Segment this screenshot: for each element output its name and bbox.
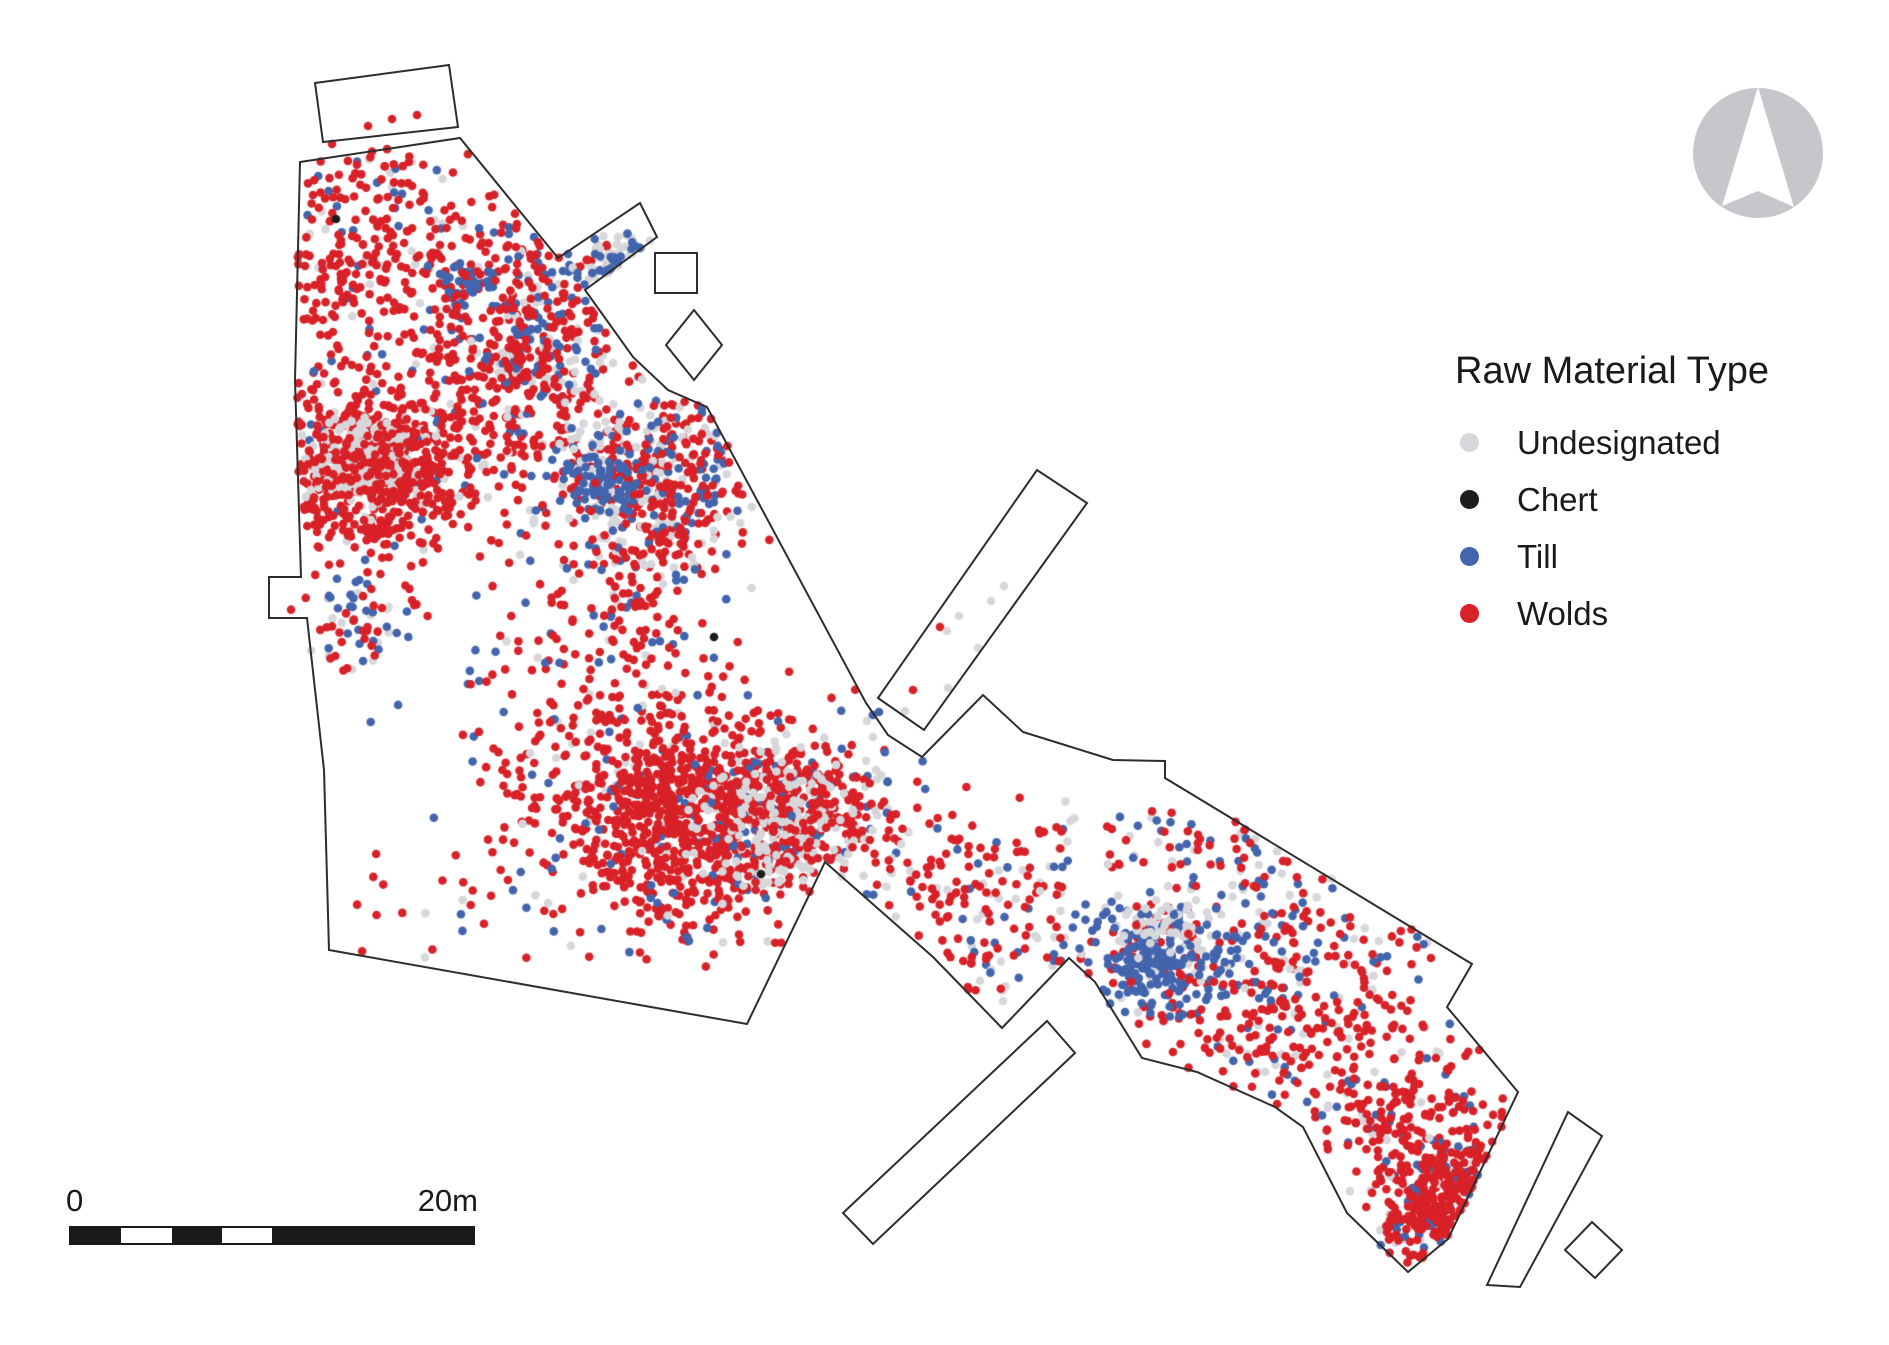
long-rectangle-ne [878,470,1087,730]
legend-item-label: Chert [1517,481,1598,519]
scale-bar-segment-0 [71,1228,121,1243]
legend-items: UndesignatedChertTillWolds [1455,414,1815,642]
legend-item-wolds: Wolds [1455,585,1815,642]
legend-item-chert: Chert [1455,471,1815,528]
tilted-square-ne [666,310,722,380]
legend-swatch-till [1460,547,1479,566]
legend-title: Raw Material Type [1455,350,1815,392]
main-excavation-outline [269,138,1518,1272]
figure-distribution-map: Raw Material Type UndesignatedChertTillW… [0,0,1889,1345]
long-rectangle-se [1487,1112,1602,1287]
legend-item-undesignated: Undesignated [1455,414,1815,471]
scale-bar-labels: 0 20m [69,1183,475,1221]
legend-item-label: Undesignated [1517,424,1721,462]
scale-bar-segment-3 [222,1228,272,1243]
scale-bar-end-label: 20m [418,1183,478,1219]
legend-swatch-undesignated [1460,433,1479,452]
legend-item-label: Wolds [1517,595,1608,633]
scale-bar: 0 20m [69,1183,475,1247]
scale-bar-start-label: 0 [66,1183,83,1219]
legend-item-till: Till [1455,528,1815,585]
legend-swatch-wolds [1460,604,1479,623]
small-diamond-se [1565,1222,1622,1278]
legend-swatch-chert [1460,490,1479,509]
legend: Raw Material Type UndesignatedChertTillW… [1455,350,1815,642]
scale-bar-segment-1 [121,1228,171,1243]
scale-bar-segment-4 [272,1228,473,1243]
legend-item-label: Till [1517,538,1558,576]
scale-bar-segment-2 [172,1228,222,1243]
site-outline-layer [0,0,1889,1345]
north-detached-rectangle [315,65,458,142]
scale-bar-bar [69,1226,475,1245]
long-rectangle-sw [843,1021,1075,1244]
small-square-ne [655,253,697,293]
